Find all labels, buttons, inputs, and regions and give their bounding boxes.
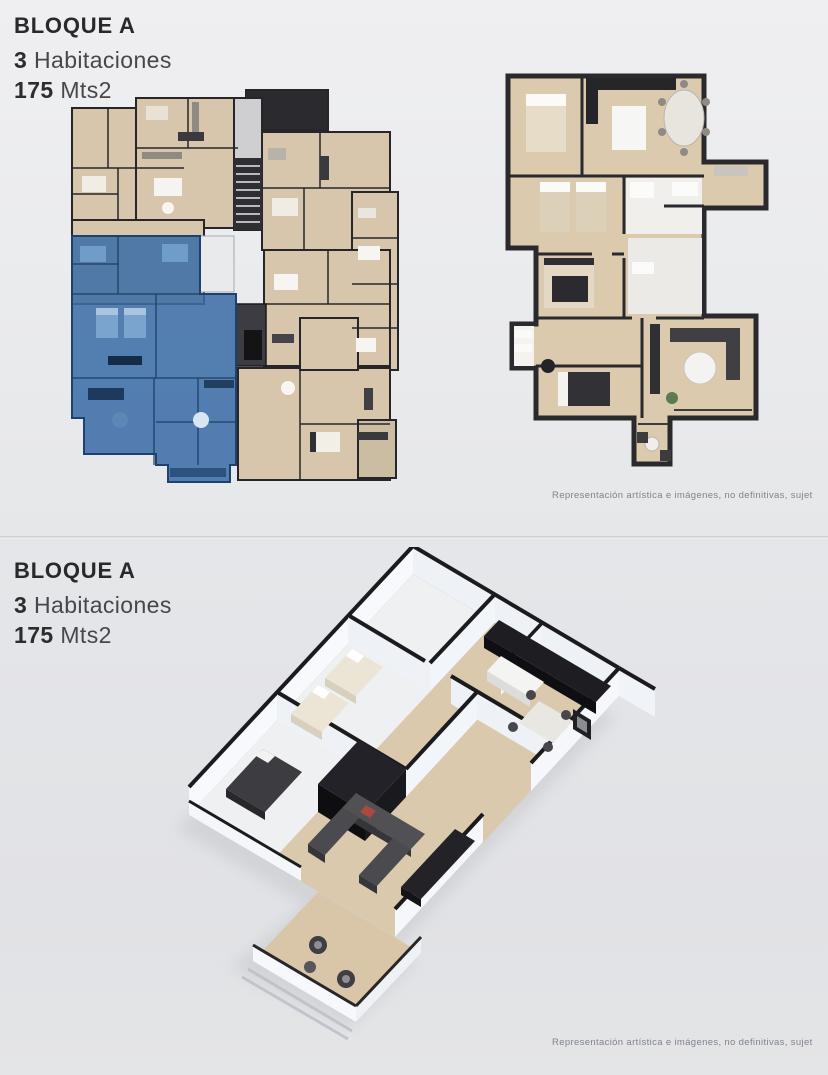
- bedrooms-line: 3 Habitaciones: [14, 591, 172, 620]
- block-title: BLOQUE A: [14, 12, 172, 40]
- area-label: Mts2: [60, 622, 111, 648]
- bedrooms-value: 3: [14, 47, 27, 73]
- brochure-page: { "panels": [ { "header": { "block_title…: [0, 0, 828, 1075]
- panel-floorplans: BLOQUE A 3 Habitaciones 175 Mts2: [0, 0, 828, 537]
- unit-floor-plan-3d-svg: [168, 547, 658, 1047]
- unit-floor-plan-3d: [168, 547, 658, 1047]
- bedrooms-label: Habitaciones: [34, 47, 172, 73]
- building-floor-plan-svg: [58, 88, 402, 492]
- area-value: 175: [14, 77, 54, 103]
- unit-floor-plan-2d: [474, 66, 786, 480]
- bedrooms-label: Habitaciones: [34, 592, 172, 618]
- disclaimer-top: Representación artística e imágenes, no …: [552, 490, 828, 501]
- area-line: 175 Mts2: [14, 621, 172, 650]
- disclaimer-bottom: Representación artística e imágenes, no …: [552, 1037, 828, 1048]
- panel-3d-render: BLOQUE A 3 Habitaciones 175 Mts2: [0, 539, 828, 1075]
- area-value: 175: [14, 622, 54, 648]
- unit-floor-plan-2d-svg: [474, 66, 786, 480]
- block-title: BLOQUE A: [14, 557, 172, 585]
- bedrooms-line: 3 Habitaciones: [14, 46, 172, 75]
- bedrooms-value: 3: [14, 592, 27, 618]
- building-floor-plan: [58, 88, 402, 492]
- panel-bottom-header: BLOQUE A 3 Habitaciones 175 Mts2: [14, 557, 172, 652]
